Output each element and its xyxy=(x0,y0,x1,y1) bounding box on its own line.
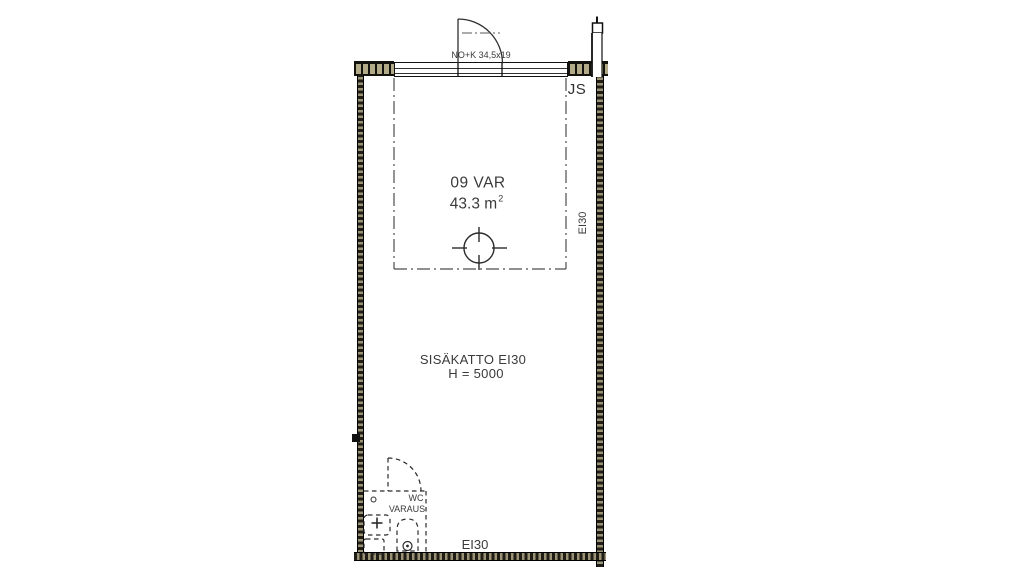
room-area-label: 43.3 m2 xyxy=(450,195,502,212)
room-number-label: 09 VAR xyxy=(450,174,505,191)
downspout-pipe-icon xyxy=(592,17,603,78)
toilet-flush-dot xyxy=(406,545,409,548)
ceiling-note-line2: H = 5000 xyxy=(448,367,504,381)
bottom-wall-fire-rating: EI30 xyxy=(462,538,489,552)
floor-drain-icon xyxy=(452,227,507,270)
top-door-mark-label: NO+K 34,5x19 xyxy=(451,51,510,61)
pipe-cap xyxy=(593,23,603,33)
room-area-exponent: 2 xyxy=(498,193,503,203)
junction-mark-label: JS xyxy=(568,82,587,99)
floor-plan-canvas: 09 VAR 43.3 m2 SISÄKATTO EI30 H = 5000 E… xyxy=(0,0,1024,576)
wc-door-swing-arc-icon xyxy=(388,458,421,491)
cabinet-icon xyxy=(364,539,384,554)
wc-label: WC xyxy=(409,494,424,504)
top-door-symbol xyxy=(458,19,503,77)
wc-point-symbol xyxy=(371,497,376,502)
pipe-body xyxy=(592,33,603,77)
right-wall-fire-rating: EI30 xyxy=(577,212,589,235)
linework-layer xyxy=(0,0,1024,576)
room-area-value: 43.3 m xyxy=(450,196,497,213)
wc-varaus-label: VARAUS xyxy=(389,505,425,515)
